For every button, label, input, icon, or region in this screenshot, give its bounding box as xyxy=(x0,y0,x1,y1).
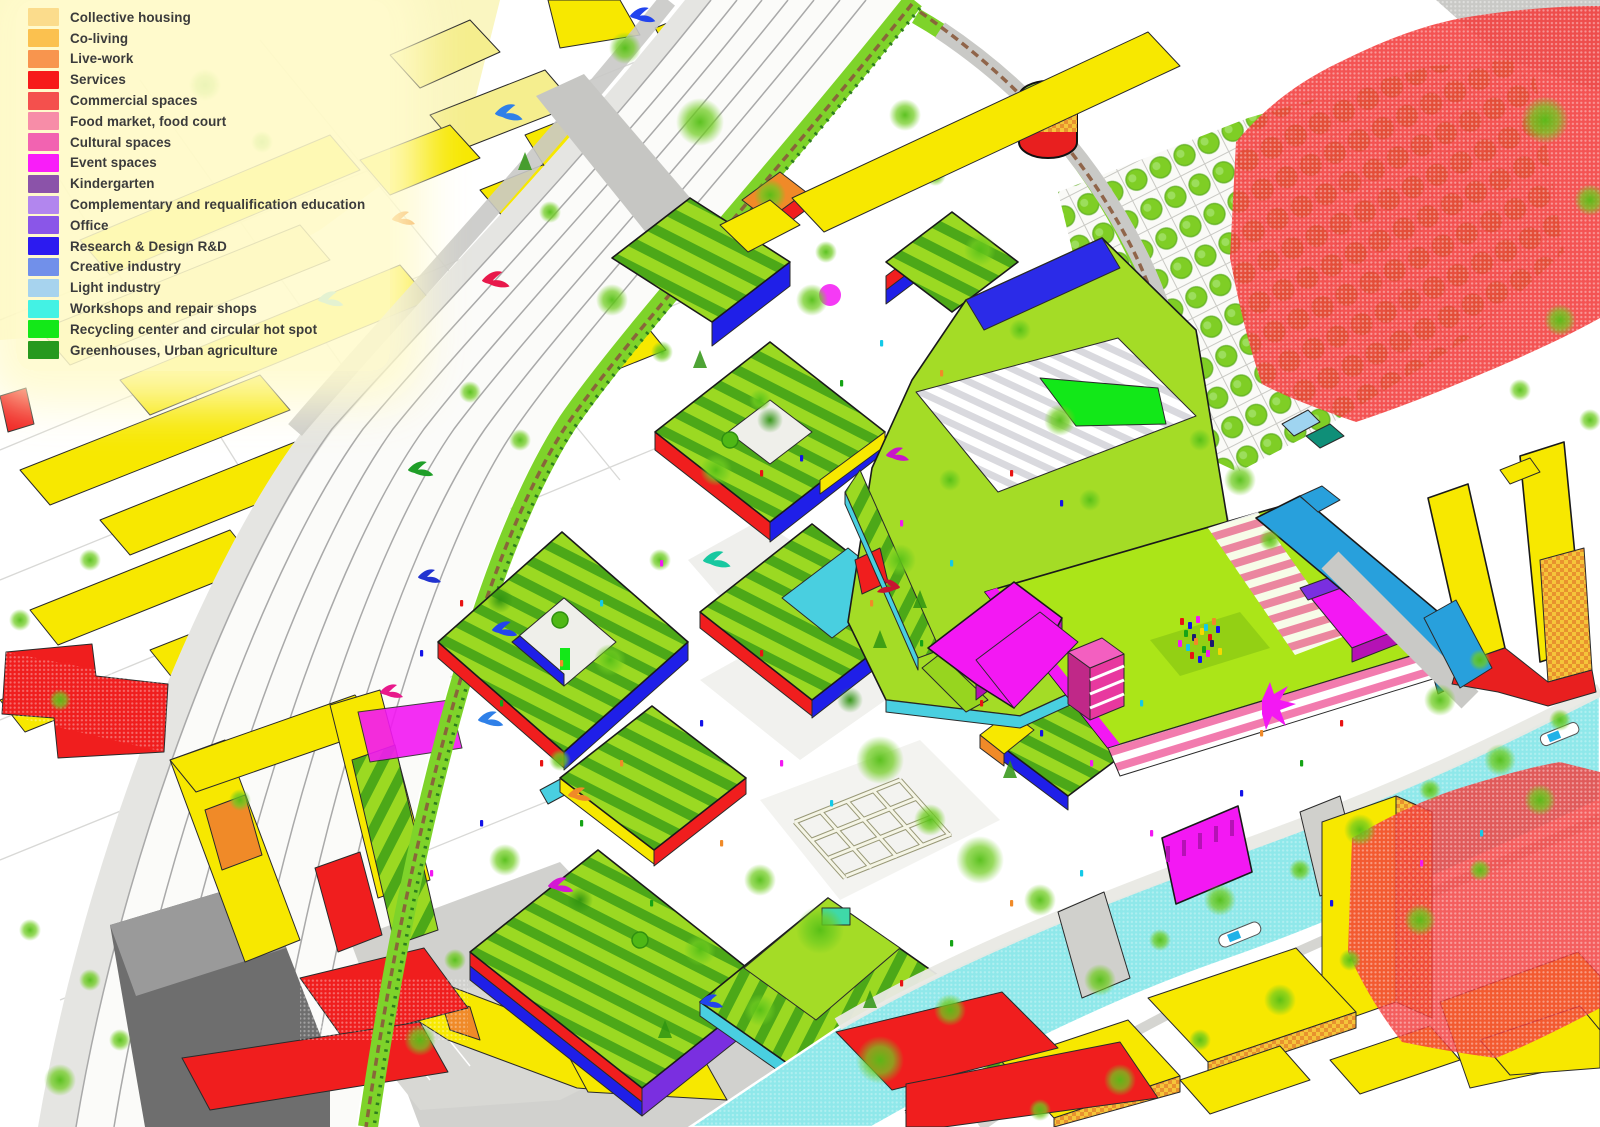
legend-swatch xyxy=(28,258,59,276)
legend-panel: Collective housing Co-living Live-work S… xyxy=(16,0,390,371)
legend-item-food-market-food-court: Food market, food court xyxy=(28,111,380,132)
legend-swatch xyxy=(28,196,59,214)
legend-item-label: Services xyxy=(70,72,126,87)
legend-swatch xyxy=(28,29,59,47)
legend-item-label: Light industry xyxy=(70,280,161,295)
legend-swatch xyxy=(28,112,59,130)
legend-item-label: Event spaces xyxy=(70,155,157,170)
legend-item-label: Live-work xyxy=(70,51,133,66)
legend-item-label: Co-living xyxy=(70,31,128,46)
legend-item-kindergarten: Kindergarten xyxy=(28,173,380,194)
legend-item-label: Collective housing xyxy=(70,10,191,25)
legend-item-research-design-rd: Research & Design R&D xyxy=(28,236,380,257)
legend-item-label: Commercial spaces xyxy=(70,93,198,108)
legend-item-label: Research & Design R&D xyxy=(70,239,227,254)
legend-swatch xyxy=(28,300,59,318)
legend-swatch xyxy=(28,216,59,234)
legend-swatch xyxy=(28,237,59,255)
legend-item-collective-housing: Collective housing xyxy=(28,7,380,28)
legend-item-label: Office xyxy=(70,218,109,233)
legend-item-services: Services xyxy=(28,69,380,90)
legend-swatch xyxy=(28,50,59,68)
legend-item-label: Food market, food court xyxy=(70,114,226,129)
legend-swatch xyxy=(28,279,59,297)
legend-item-co-living: Co-living xyxy=(28,28,380,49)
legend-item-label: Greenhouses, Urban agriculture xyxy=(70,343,278,358)
legend-item-commercial-spaces: Commercial spaces xyxy=(28,90,380,111)
legend-item-light-industry: Light industry xyxy=(28,277,380,298)
legend-item-office: Office xyxy=(28,215,380,236)
legend-item-label: Complementary and requalification educat… xyxy=(70,197,365,212)
legend-swatch xyxy=(28,71,59,89)
event-tower xyxy=(1068,638,1124,720)
legend-item-recycling-center-circular-hot-spot: Recycling center and circular hot spot xyxy=(28,319,380,340)
legend-swatch xyxy=(28,133,59,151)
legend-swatch xyxy=(28,154,59,172)
masterplan-illustration: Collective housing Co-living Live-work S… xyxy=(0,0,1600,1127)
legend-swatch xyxy=(28,175,59,193)
legend-item-label: Creative industry xyxy=(70,259,181,274)
legend-item-creative-industry: Creative industry xyxy=(28,257,380,278)
legend-list: Collective housing Co-living Live-work S… xyxy=(28,7,380,361)
legend-item-workshops-repair-shops: Workshops and repair shops xyxy=(28,298,380,319)
legend-item-label: Workshops and repair shops xyxy=(70,301,257,316)
legend-item-label: Cultural spaces xyxy=(70,135,171,150)
legend-swatch xyxy=(28,320,59,338)
legend-item-label: Kindergarten xyxy=(70,176,155,191)
legend-item-live-work: Live-work xyxy=(28,49,380,70)
legend-item-label: Recycling center and circular hot spot xyxy=(70,322,317,337)
legend-swatch xyxy=(28,92,59,110)
legend-item-event-spaces: Event spaces xyxy=(28,153,380,174)
legend-item-greenhouses-urban-agriculture: Greenhouses, Urban agriculture xyxy=(28,340,380,361)
legend-item-cultural-spaces: Cultural spaces xyxy=(28,132,380,153)
legend-swatch xyxy=(28,8,59,26)
legend-swatch xyxy=(28,341,59,359)
legend-item-complementary-requalification-education: Complementary and requalification educat… xyxy=(28,194,380,215)
